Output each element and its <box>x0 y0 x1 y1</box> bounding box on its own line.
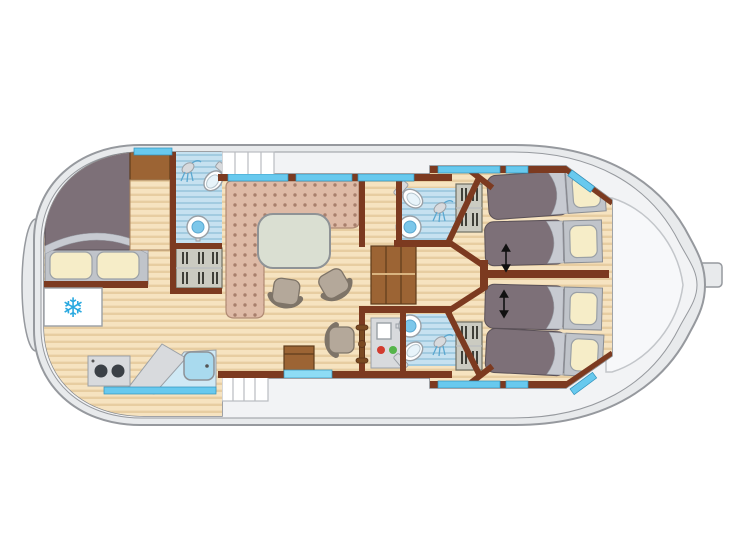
floor-plan-page: ❄ <box>0 0 747 560</box>
window <box>296 174 352 181</box>
wardrobe-closet-fore <box>176 248 222 288</box>
dining-chair <box>269 277 302 307</box>
window <box>438 381 500 388</box>
stove-burner <box>112 365 125 378</box>
window <box>506 166 528 173</box>
window <box>358 174 414 181</box>
sink-faucet <box>205 364 209 368</box>
window <box>506 381 528 388</box>
console-screen <box>377 323 391 339</box>
pillow <box>50 252 92 279</box>
window <box>134 148 172 155</box>
wardrobe-fore-top <box>130 152 170 180</box>
storage-box <box>284 346 314 372</box>
pillow <box>97 252 139 279</box>
console-light-red <box>377 346 385 354</box>
saloon-table <box>258 214 330 268</box>
single-bed <box>484 219 602 266</box>
stove-burner <box>95 365 108 378</box>
window <box>438 166 500 173</box>
galley-sink <box>184 352 214 380</box>
boat-floor-plan: ❄ <box>0 0 747 560</box>
entry-door <box>284 370 332 378</box>
deck-steps-aft <box>222 377 268 401</box>
window <box>228 174 288 181</box>
helm-seat <box>328 325 354 355</box>
console-light-green <box>389 346 397 354</box>
snowflake-icon: ❄ <box>62 293 85 324</box>
companionway-stairs <box>371 246 416 304</box>
cabinet-front <box>130 180 170 250</box>
window <box>104 387 216 394</box>
bow-cabin-wall <box>44 281 148 288</box>
single-bed <box>484 284 602 331</box>
